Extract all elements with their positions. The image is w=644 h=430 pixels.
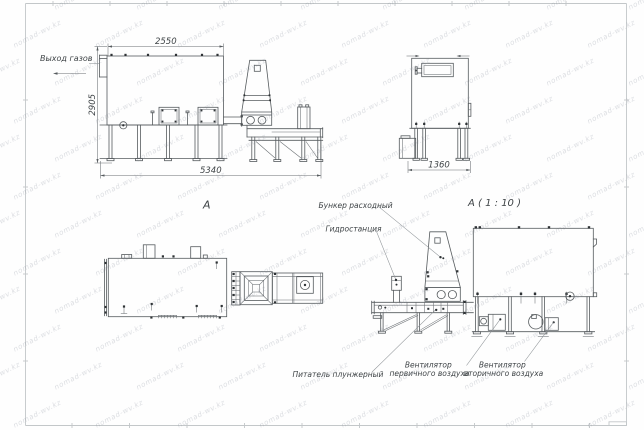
furnace-body-front — [100, 54, 228, 161]
hopper-plan — [240, 272, 272, 305]
coupling-plan — [232, 272, 240, 305]
hopper-assembly-front — [224, 60, 323, 161]
dimension-1360: 1360 — [408, 160, 470, 173]
drawing-sheet: 2550 2905 5340 Выход газов — [0, 0, 644, 430]
end-view-side-box — [399, 136, 415, 159]
section-view-title: А ( 1 : 10 ) — [467, 198, 521, 209]
dim-2550-value: 2550 — [155, 37, 177, 47]
fan-secondary — [529, 315, 559, 331]
frame-ruler-ticks — [23, 1, 629, 428]
fan-secondary-label-line2: вторичного воздуха — [464, 369, 544, 378]
end-view: 1360 — [399, 55, 471, 173]
dimension-2905: 2905 — [88, 47, 112, 164]
plan-view — [104, 245, 322, 319]
hopper-section — [425, 232, 460, 301]
cad-drawing: 2550 2905 5340 Выход газов — [0, 0, 644, 430]
dim-1360-value: 1360 — [428, 160, 450, 170]
front-view: 2550 2905 5340 Выход газов — [40, 37, 323, 212]
anchor-bolt-icons — [121, 261, 223, 313]
section-view: Бункер расходный Гидростанция Питатель п… — [293, 201, 597, 379]
feeder-label: Питатель плунжерный — [293, 370, 384, 379]
leader-lines — [372, 207, 553, 373]
end-view-legs — [413, 122, 470, 161]
front-view-label: А — [202, 199, 211, 212]
dimension-5340: 5340 — [101, 141, 322, 179]
hydro-label: Гидростанция — [326, 225, 383, 234]
dim-5340-value: 5340 — [200, 166, 222, 176]
gas-outlet-annotation: Выход газов — [40, 54, 100, 75]
gas-outlet-label: Выход газов — [40, 54, 93, 63]
sheet-frame — [23, 1, 629, 428]
feeder-plan — [272, 273, 322, 304]
fan-secondary-label: Вентилятор вторичного воздуха — [464, 361, 544, 379]
fan-primary-label-line2: первичного воздуха — [389, 369, 469, 378]
dimension-2550: 2550 — [108, 37, 224, 56]
plunger-feeder-section — [372, 301, 474, 334]
end-view-hatch — [415, 63, 453, 76]
furnace-body-section — [473, 226, 596, 303]
dim-2905-value: 2905 — [88, 94, 98, 116]
fan-primary-label: Вентилятор первичного воздуха — [389, 361, 469, 379]
conveyor-frame-front — [249, 137, 323, 162]
hopper-label: Бункер расходный — [319, 201, 393, 210]
gas-flow-arrow-icon — [53, 72, 58, 74]
furnace-legs-front — [100, 125, 227, 161]
fan-primary — [479, 314, 505, 330]
